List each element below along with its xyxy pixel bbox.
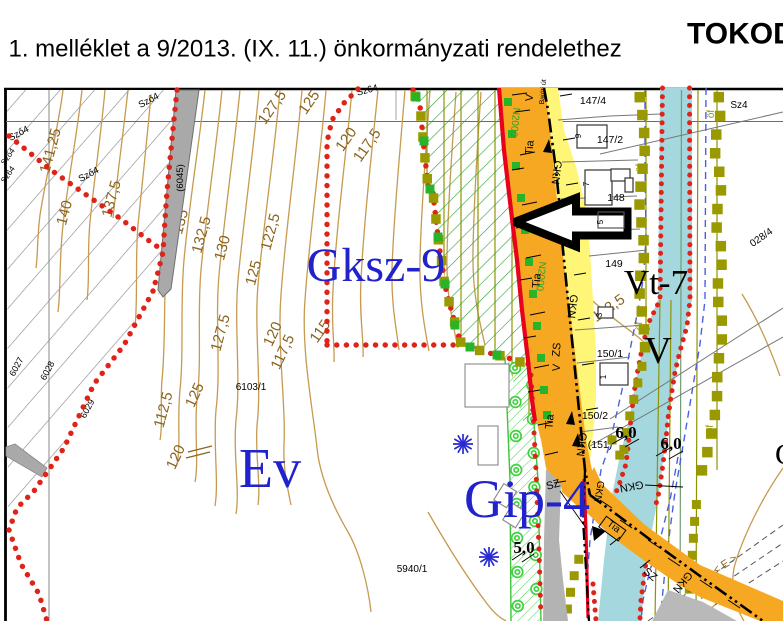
svg-text:Gksz-9: Gksz-9 — [307, 239, 446, 292]
svg-text:150/1: 150/1 — [597, 348, 623, 360]
svg-text:7: 7 — [582, 181, 591, 186]
svg-text:Tia: Tia — [530, 272, 543, 289]
svg-text:5,0: 5,0 — [513, 538, 534, 557]
svg-text:TOKOD: TOKOD — [687, 18, 783, 51]
svg-text:Vt-7: Vt-7 — [624, 263, 688, 302]
svg-text:6103/1: 6103/1 — [236, 382, 267, 393]
svg-text:6,0: 6,0 — [660, 434, 681, 453]
svg-text:1: 1 — [599, 374, 608, 379]
svg-text:ZS: ZS — [550, 342, 563, 357]
svg-text:3: 3 — [595, 312, 604, 317]
svg-text:Gip-4: Gip-4 — [464, 469, 590, 529]
svg-text:5: 5 — [596, 219, 605, 224]
svg-text:6,0: 6,0 — [615, 423, 636, 442]
svg-text:G: G — [775, 438, 783, 471]
svg-text:Ev: Ev — [239, 438, 301, 500]
svg-text:147/4: 147/4 — [580, 95, 606, 107]
svg-text:Tia: Tia — [543, 413, 556, 430]
svg-text:147/2: 147/2 — [597, 134, 623, 146]
svg-text:149: 149 — [605, 258, 623, 270]
svg-text:Tia: Tia — [523, 139, 536, 156]
svg-text:5940/1: 5940/1 — [397, 564, 428, 575]
svg-text:V: V — [644, 330, 672, 372]
svg-text:9: 9 — [574, 133, 583, 138]
svg-text:148: 148 — [607, 192, 625, 204]
svg-text:(6045): (6045) — [175, 164, 186, 191]
svg-text:150/2: 150/2 — [582, 410, 608, 422]
svg-text:Sz4: Sz4 — [730, 100, 748, 111]
svg-text:1. melléklet a 9/2013. (IX. 11: 1. melléklet a 9/2013. (IX. 11.) önkormá… — [9, 36, 622, 63]
